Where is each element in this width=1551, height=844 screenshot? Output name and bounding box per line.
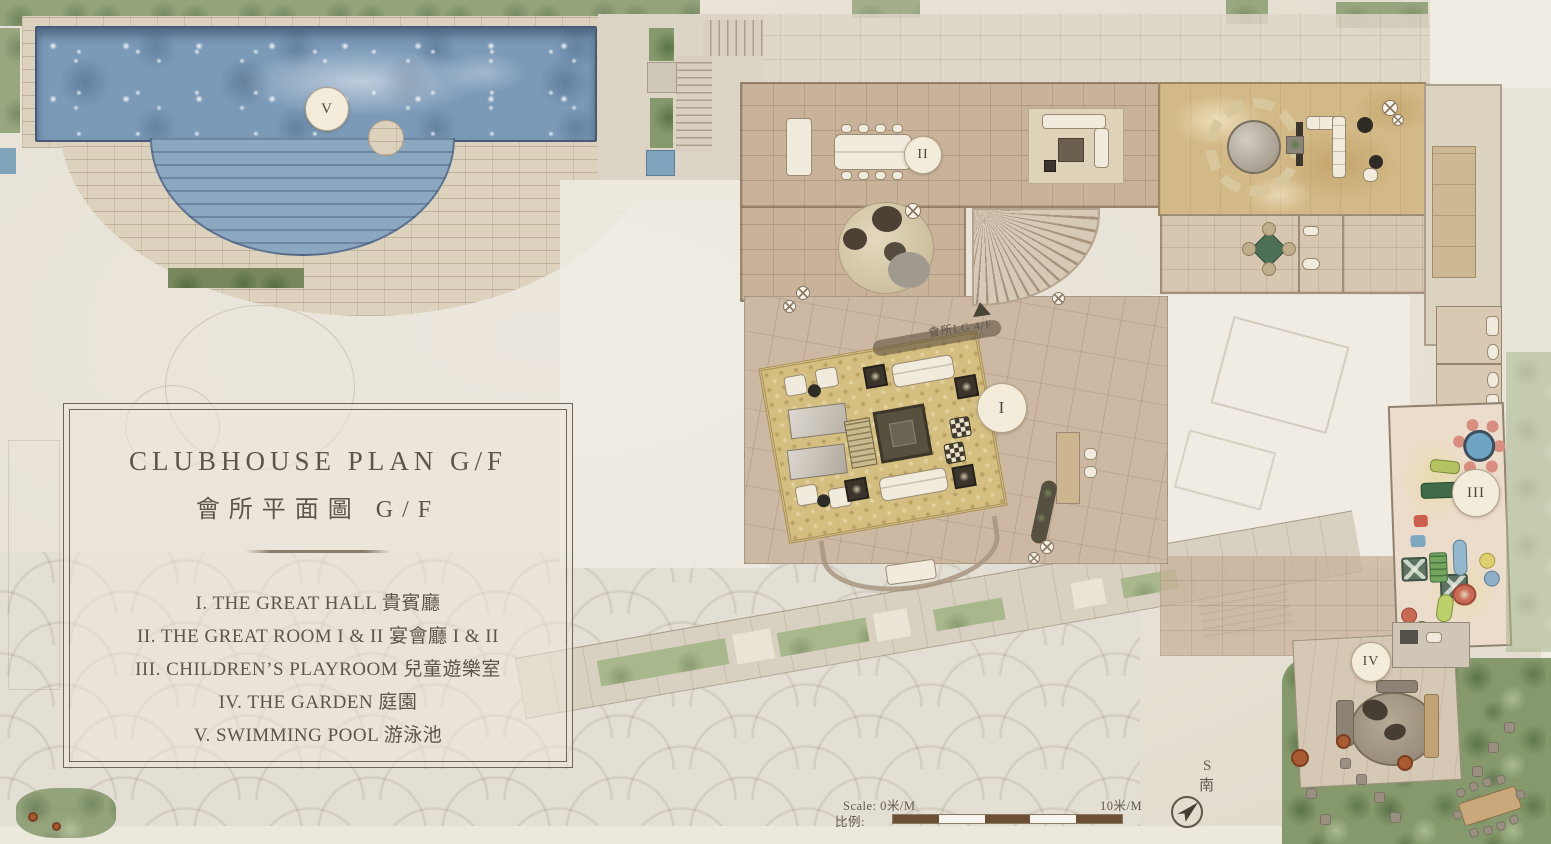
stool xyxy=(1044,160,1056,172)
pantry-counter xyxy=(1303,226,1319,236)
side-table-square xyxy=(863,364,888,389)
stepping-stone xyxy=(1320,814,1331,825)
marker-swimming-pool: V xyxy=(305,87,349,131)
card-chair xyxy=(1282,242,1296,256)
card-chair xyxy=(1262,222,1276,236)
upper-terrace xyxy=(700,14,1448,84)
children-playroom xyxy=(1388,402,1512,650)
play-dot-blue xyxy=(1484,570,1501,587)
marble-table xyxy=(788,403,849,440)
marker-label: II xyxy=(917,147,928,163)
legend-item-garden: IV. THE GARDEN 庭園 xyxy=(64,686,572,719)
marker-label: IV xyxy=(1363,654,1380,670)
pantry-wall xyxy=(1298,216,1300,292)
sofa xyxy=(1094,128,1109,168)
compass-char: 南 xyxy=(1199,774,1215,795)
left-edge-hedge xyxy=(0,28,20,133)
scale-segment xyxy=(985,815,1031,823)
compass xyxy=(1171,796,1203,828)
reception-chair xyxy=(1084,466,1097,478)
dining-chair xyxy=(892,124,903,133)
corridor-counter xyxy=(1432,146,1476,278)
left-edge-water xyxy=(0,148,16,174)
card-table-set xyxy=(1242,222,1296,276)
kids-round-table-set xyxy=(1452,418,1506,476)
grand-staircase xyxy=(972,208,1100,306)
dining-chair xyxy=(892,171,903,180)
stepping-stone xyxy=(1340,758,1351,769)
outdoor-seat xyxy=(1515,789,1526,800)
scale-right-label: 10米/M xyxy=(1100,795,1142,814)
stepping-stone xyxy=(1356,774,1367,785)
deck-hedge xyxy=(168,268,304,288)
kids-chair-pink xyxy=(1486,460,1498,472)
marble-table xyxy=(787,443,848,480)
plan-title-zh: 會所平面圖 G/F xyxy=(64,489,572,524)
dining-chair xyxy=(841,171,852,180)
stair-planter xyxy=(650,98,673,148)
scale-segment xyxy=(893,815,939,823)
lounge-chair-dark xyxy=(1357,117,1373,133)
garden-bench xyxy=(1376,680,1418,693)
scale-bar xyxy=(892,814,1123,824)
lounge-dark-seat xyxy=(843,228,867,250)
stair-planter xyxy=(649,28,674,61)
striped-bench xyxy=(844,417,878,469)
stepping-stone xyxy=(1374,792,1385,803)
outdoor-seat xyxy=(1495,774,1506,785)
terracotta-pot xyxy=(1397,755,1413,771)
promenade-paver xyxy=(732,628,775,664)
side-table xyxy=(905,203,921,219)
lounge-dark-seat xyxy=(872,206,902,232)
scale-ratio-label: 比例: xyxy=(835,811,865,830)
floor-table xyxy=(1040,540,1054,554)
pantry-wall xyxy=(1342,216,1344,292)
outdoor-seat xyxy=(1508,814,1519,825)
legend-divider xyxy=(245,550,391,553)
clubhouse-floor-plan: 會所LG 4/F CLUBHOUSE PLAN G/F 會所平面圖 G/F I.… xyxy=(0,0,1551,844)
kids-table-blue xyxy=(1463,429,1496,462)
marker-label: III xyxy=(1467,485,1485,502)
planter-box xyxy=(1286,136,1304,154)
outdoor-seat xyxy=(1482,825,1493,836)
stepping-stone xyxy=(1472,766,1483,777)
armchair xyxy=(1363,168,1378,182)
marker-label: I xyxy=(999,398,1006,418)
great-hall-carpet xyxy=(758,330,1008,544)
floor-table xyxy=(1028,552,1040,564)
promenade-paver xyxy=(873,608,911,641)
play-slide xyxy=(1452,539,1467,575)
play-structure-deck xyxy=(1401,557,1428,582)
terracotta-pot xyxy=(28,812,38,822)
stepping-stone xyxy=(1306,788,1317,799)
dining-chair xyxy=(841,124,852,133)
exterior-stairs-main xyxy=(676,56,712,151)
promenade-paver xyxy=(1070,578,1106,609)
sofa-l-shape xyxy=(1332,116,1346,178)
side-table-square xyxy=(954,374,979,399)
floor-table xyxy=(796,286,810,300)
legend-item-playroom: III. CHILDREN’S PLAYROOM 兒童遊樂室 xyxy=(64,653,572,686)
stepping-stone xyxy=(1488,742,1499,753)
side-table xyxy=(1392,114,1404,126)
legend-panel: CLUBHOUSE PLAN G/F 會所平面圖 G/F I. THE GREA… xyxy=(63,403,573,768)
terracotta-pot xyxy=(52,822,61,831)
legend-item-pool: V. SWIMMING POOL 游泳池 xyxy=(64,719,572,752)
sofa xyxy=(878,467,949,502)
pouf-checkered xyxy=(943,441,966,464)
sofa xyxy=(1042,114,1106,129)
wood-bench xyxy=(1424,694,1439,758)
top-right-corner xyxy=(1430,0,1551,88)
ghost-building-outline xyxy=(8,440,60,690)
lounge-chair-dark xyxy=(1369,155,1383,169)
stepping-stone xyxy=(1504,722,1515,733)
promenade-planter xyxy=(597,638,730,686)
toy-blue xyxy=(1410,535,1425,548)
legend-item-great-hall: I. THE GREAT HALL 貴賓廳 xyxy=(64,587,572,620)
armchair xyxy=(794,483,819,507)
legend-item-great-room: II. THE GREAT ROOM I & II 宴會廳 I & II xyxy=(64,620,572,653)
scale-segment xyxy=(1076,815,1122,823)
compass-needle-icon xyxy=(1173,798,1201,826)
marker-great-hall: I xyxy=(977,383,1027,433)
plan-title-en: CLUBHOUSE PLAN G/F xyxy=(64,446,572,477)
legend-items: I. THE GREAT HALL 貴賓廳 II. THE GREAT ROOM… xyxy=(64,587,572,752)
card-chair xyxy=(1262,262,1276,276)
dining-chair xyxy=(875,171,886,180)
promenade-planter xyxy=(933,598,1006,632)
washroom-sink xyxy=(1486,316,1499,336)
east-tree-strip xyxy=(1506,352,1551,652)
outdoor-seat xyxy=(1468,781,1479,792)
round-marble-table xyxy=(1227,120,1281,174)
exterior-stairs-upper xyxy=(703,20,763,56)
deck-circle xyxy=(368,120,404,156)
card-chair xyxy=(1242,242,1256,256)
water-feature-small xyxy=(646,150,675,176)
marker-great-room: II xyxy=(904,136,942,174)
pouf-checkered xyxy=(949,416,972,439)
outdoor-seat xyxy=(1455,787,1466,798)
pantry-sink xyxy=(1302,258,1320,270)
outdoor-seat xyxy=(1496,820,1507,831)
garden-grill xyxy=(1400,630,1418,644)
floor-table xyxy=(1052,292,1065,305)
reception-chair xyxy=(1084,448,1097,460)
roof-void-left xyxy=(560,180,770,568)
kids-chair-pink xyxy=(1486,420,1498,432)
stair-direction-arrow-icon xyxy=(971,301,991,317)
washroom-toilet xyxy=(1487,372,1499,388)
stair-landing xyxy=(647,62,677,93)
serving-console xyxy=(786,118,812,176)
reception-counter xyxy=(1056,432,1080,504)
outdoor-seat xyxy=(1468,827,1479,838)
marker-label: V xyxy=(321,101,333,118)
marker-garden: IV xyxy=(1351,642,1391,682)
armchair xyxy=(783,374,808,398)
play-dot-yellow xyxy=(1479,552,1496,569)
dining-chair xyxy=(858,124,869,133)
promenade-planter xyxy=(777,618,870,657)
washroom-toilet xyxy=(1487,344,1499,360)
floor-table xyxy=(783,300,796,313)
dining-chair xyxy=(858,171,869,180)
dining-chair xyxy=(875,124,886,133)
garden-kitchen-counter xyxy=(1392,622,1470,668)
play-ladder xyxy=(1429,552,1448,583)
sofa xyxy=(891,354,956,388)
compass-letter: S xyxy=(1203,758,1212,775)
lounge-grey-pouf xyxy=(888,252,930,288)
center-table-inner xyxy=(889,420,917,448)
marker-playroom: III xyxy=(1452,469,1500,517)
stepping-stone xyxy=(1390,812,1401,823)
toy-red xyxy=(1414,515,1428,527)
side-table-square xyxy=(951,464,976,489)
garden-sink xyxy=(1426,632,1442,643)
side-table-square xyxy=(844,477,869,502)
dining-table-long xyxy=(834,134,912,170)
coffee-table xyxy=(1058,138,1084,162)
outdoor-seat xyxy=(1481,777,1492,788)
terracotta-pot xyxy=(1291,749,1309,767)
terracotta-pot xyxy=(1336,734,1351,749)
